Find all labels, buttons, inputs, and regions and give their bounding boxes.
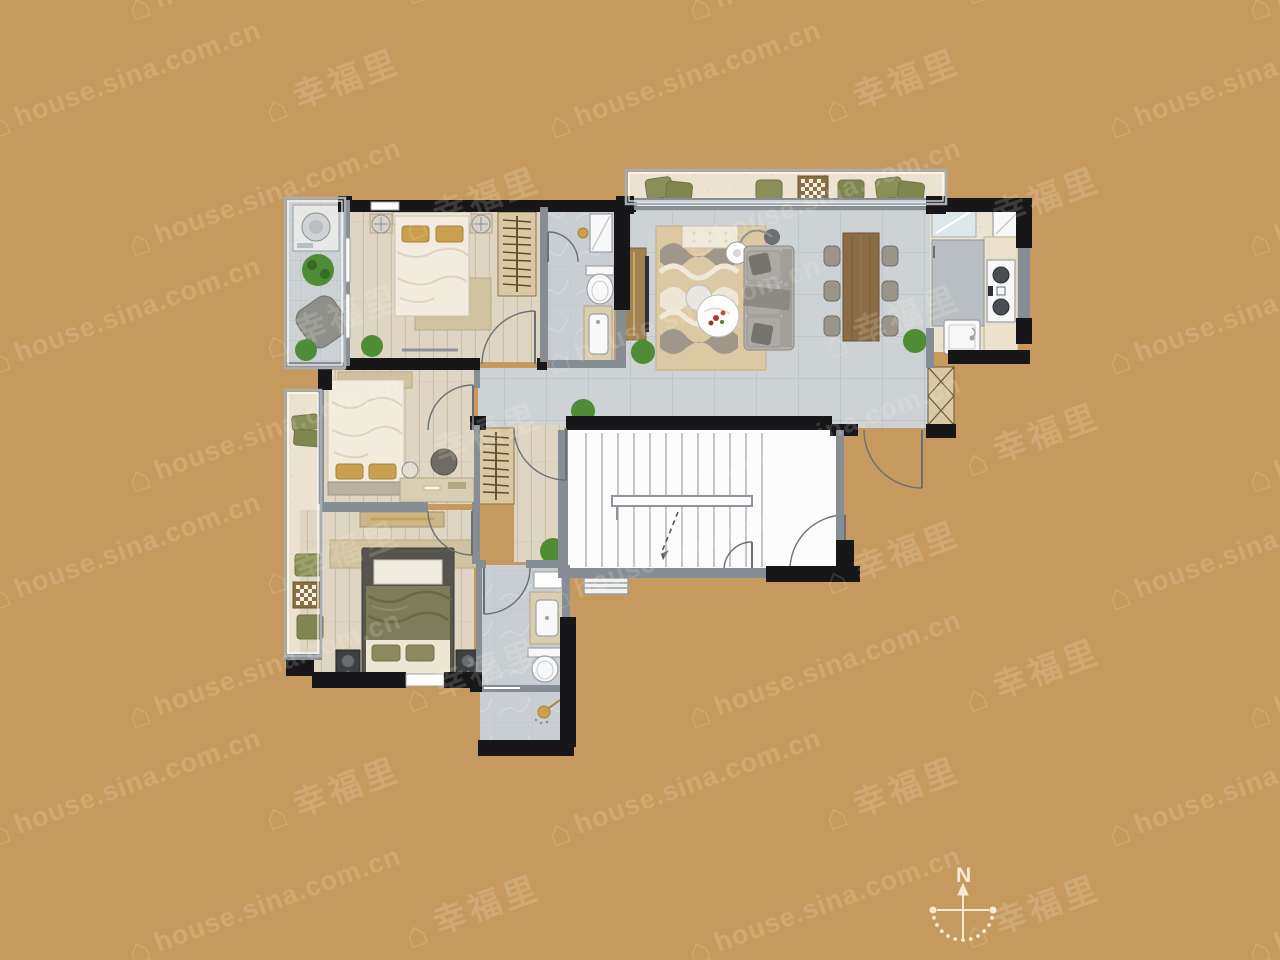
pillow — [406, 645, 434, 661]
plant — [295, 339, 317, 361]
plant — [903, 329, 927, 353]
desk-fan — [402, 462, 418, 478]
island-counter — [932, 240, 984, 326]
game-board — [293, 582, 321, 608]
vanity-sink — [530, 592, 564, 644]
vanity-sink — [584, 306, 612, 362]
stair-handrail — [612, 496, 752, 506]
compass-north-label: N — [956, 864, 971, 887]
floor-plan-page: { "watermark": { "site_text": "house.sin… — [0, 0, 1280, 960]
stove — [987, 260, 1015, 322]
compass: N — [930, 864, 996, 941]
plant — [631, 340, 655, 364]
wardrobe — [498, 212, 536, 296]
desk-chair — [431, 449, 457, 475]
pillow — [369, 464, 396, 479]
headboard — [328, 482, 406, 495]
floor-plan: N — [0, 0, 1280, 960]
cushion — [756, 180, 782, 200]
cushion — [838, 180, 864, 200]
pillow — [372, 645, 400, 661]
cushion — [291, 414, 318, 432]
potted-plant — [302, 254, 334, 286]
bed-master — [362, 548, 454, 678]
plant — [361, 335, 383, 357]
throw-pillow — [750, 322, 773, 345]
cushion — [297, 615, 323, 639]
utility-shaft — [928, 367, 954, 425]
shower-head — [578, 228, 588, 238]
throw-pillow — [748, 252, 772, 276]
wardrobe — [478, 428, 514, 504]
niche — [534, 572, 562, 588]
kitchen — [932, 209, 1019, 355]
kitchen-sink — [944, 320, 980, 354]
entry-steps — [584, 578, 628, 594]
bed-double — [328, 380, 406, 495]
sofa — [743, 246, 794, 350]
tv — [645, 256, 649, 332]
toilet — [586, 266, 614, 304]
pillow — [436, 226, 463, 242]
pillow — [402, 226, 429, 242]
bed-double — [393, 212, 471, 316]
pillow — [336, 464, 363, 479]
dining-set — [824, 233, 898, 341]
cushion — [295, 554, 321, 576]
